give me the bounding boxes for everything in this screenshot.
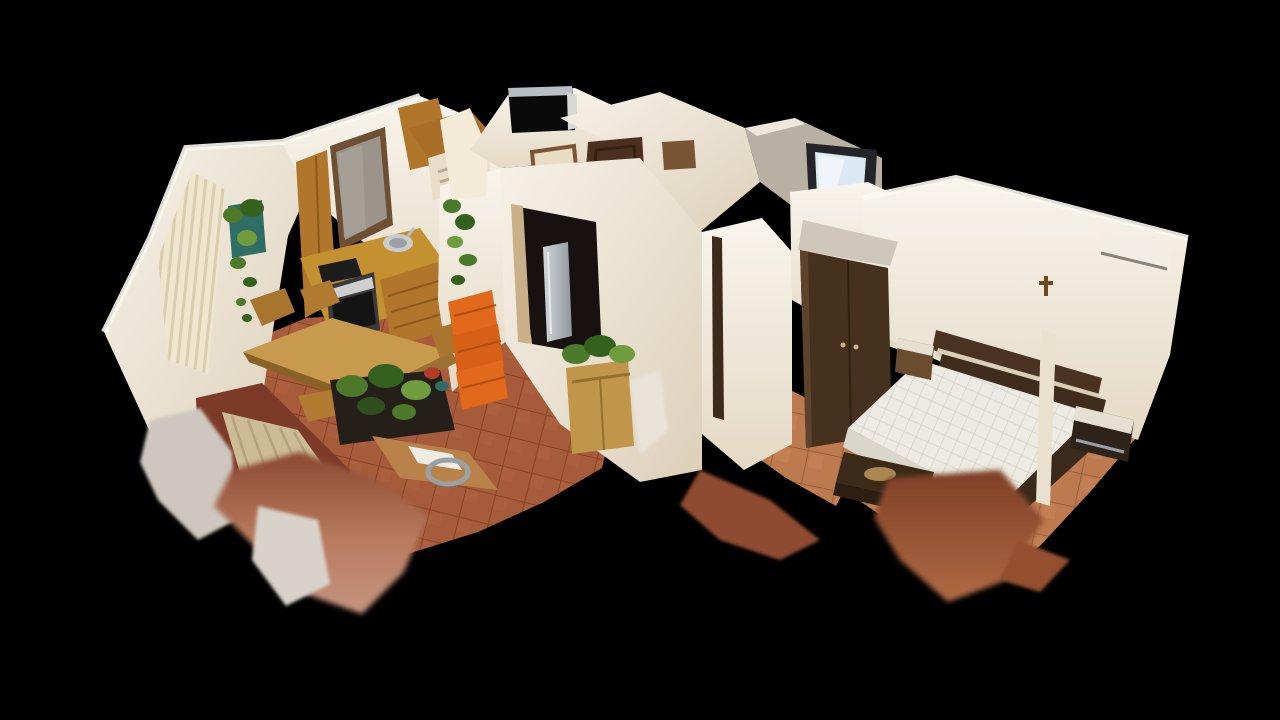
dark-wall-niche: [508, 86, 577, 133]
dollhouse-viewer[interactable]: [0, 0, 1280, 720]
doorway-opening: [511, 204, 602, 356]
interior-door: [662, 140, 696, 170]
dollhouse-canvas[interactable]: [0, 0, 1280, 720]
hall-bedroom-pillar: [702, 218, 792, 470]
